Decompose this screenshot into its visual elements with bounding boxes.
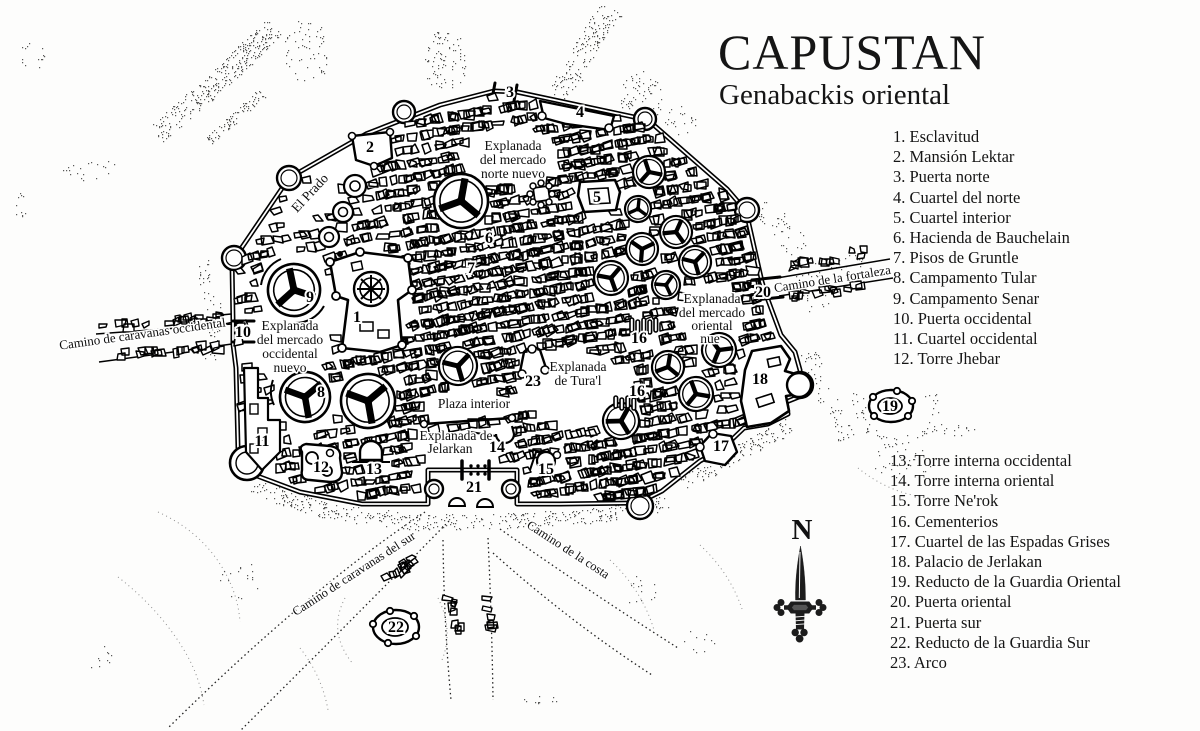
svg-text:2. Mansión Lektar: 2. Mansión Lektar bbox=[893, 147, 1015, 166]
svg-text:10. Puerta occidental: 10. Puerta occidental bbox=[893, 309, 1032, 328]
svg-text:6. Hacienda de Bauchelain: 6. Hacienda de Bauchelain bbox=[893, 228, 1070, 247]
svg-text:13: 13 bbox=[366, 461, 382, 478]
svg-text:17: 17 bbox=[713, 438, 729, 455]
svg-text:9. Campamento Senar: 9. Campamento Senar bbox=[893, 289, 1040, 308]
svg-text:10: 10 bbox=[235, 324, 251, 341]
svg-text:11. Cuartel occidental: 11. Cuartel occidental bbox=[893, 329, 1038, 348]
svg-text:del mercado: del mercado bbox=[480, 152, 547, 167]
svg-text:5: 5 bbox=[593, 189, 601, 206]
svg-text:17. Cuartel de las Espadas Gri: 17. Cuartel de las Espadas Grises bbox=[890, 532, 1110, 551]
svg-text:11: 11 bbox=[254, 433, 269, 450]
svg-text:4: 4 bbox=[576, 104, 584, 121]
svg-text:2: 2 bbox=[366, 139, 374, 156]
svg-text:15: 15 bbox=[538, 461, 554, 478]
svg-text:de Tura'l: de Tura'l bbox=[554, 373, 601, 388]
svg-text:16: 16 bbox=[629, 383, 645, 400]
svg-text:7. Pisos de Gruntle: 7. Pisos de Gruntle bbox=[893, 248, 1019, 267]
svg-text:18: 18 bbox=[752, 371, 768, 388]
svg-text:23. Arco: 23. Arco bbox=[890, 653, 947, 672]
svg-text:22. Reducto de la Guardia Sur: 22. Reducto de la Guardia Sur bbox=[890, 633, 1090, 652]
svg-text:20. Puerta oriental: 20. Puerta oriental bbox=[890, 592, 1012, 611]
svg-text:9: 9 bbox=[306, 289, 314, 306]
svg-text:3. Puerta norte: 3. Puerta norte bbox=[893, 167, 990, 186]
svg-text:N: N bbox=[792, 514, 813, 546]
svg-text:nue: nue bbox=[700, 331, 720, 346]
svg-text:20: 20 bbox=[755, 284, 771, 301]
svg-text:Explanada: Explanada bbox=[262, 318, 319, 333]
svg-text:7: 7 bbox=[467, 260, 475, 277]
svg-text:5. Cuartel interior: 5. Cuartel interior bbox=[893, 208, 1011, 227]
svg-text:Explanada: Explanada bbox=[684, 291, 741, 306]
svg-text:Genabackis oriental: Genabackis oriental bbox=[719, 79, 950, 111]
svg-text:12. Torre Jhebar: 12. Torre Jhebar bbox=[893, 349, 1001, 368]
svg-text:23: 23 bbox=[525, 373, 541, 390]
svg-text:CAPUSTAN: CAPUSTAN bbox=[718, 24, 986, 80]
svg-text:norte nuevo: norte nuevo bbox=[481, 166, 545, 181]
svg-text:3: 3 bbox=[506, 84, 514, 101]
svg-text:1: 1 bbox=[353, 309, 361, 326]
svg-text:16. Cementerios: 16. Cementerios bbox=[890, 512, 998, 531]
svg-text:Explanada: Explanada bbox=[550, 359, 607, 374]
svg-text:16: 16 bbox=[631, 330, 647, 347]
svg-text:1. Esclavitud: 1. Esclavitud bbox=[893, 127, 980, 146]
svg-text:21. Puerta sur: 21. Puerta sur bbox=[890, 613, 982, 632]
svg-text:nuevo: nuevo bbox=[274, 360, 307, 375]
svg-text:occidental: occidental bbox=[262, 346, 318, 361]
svg-text:6: 6 bbox=[485, 230, 493, 247]
svg-text:15. Torre Ne'rok: 15. Torre Ne'rok bbox=[890, 491, 999, 510]
svg-text:8: 8 bbox=[317, 384, 325, 401]
svg-text:18. Palacio de Jerlakan: 18. Palacio de Jerlakan bbox=[890, 552, 1042, 571]
svg-text:12: 12 bbox=[313, 459, 329, 476]
svg-text:Explanada: Explanada bbox=[485, 138, 542, 153]
svg-text:13. Torre interna occidental: 13. Torre interna occidental bbox=[890, 451, 1072, 470]
svg-text:Jelarkan: Jelarkan bbox=[428, 441, 473, 456]
svg-text:14. Torre interna oriental: 14. Torre interna oriental bbox=[890, 471, 1055, 490]
svg-text:19: 19 bbox=[882, 398, 898, 415]
svg-text:22: 22 bbox=[388, 619, 404, 636]
svg-text:21: 21 bbox=[466, 479, 482, 496]
svg-text:Plaza interior: Plaza interior bbox=[438, 396, 511, 411]
svg-text:del mercado: del mercado bbox=[257, 332, 324, 347]
svg-text:19. Reducto de la Guardia Orie: 19. Reducto de la Guardia Oriental bbox=[890, 572, 1121, 591]
svg-text:8. Campamento Tular: 8. Campamento Tular bbox=[893, 268, 1037, 287]
svg-text:4. Cuartel del norte: 4. Cuartel del norte bbox=[893, 188, 1020, 207]
